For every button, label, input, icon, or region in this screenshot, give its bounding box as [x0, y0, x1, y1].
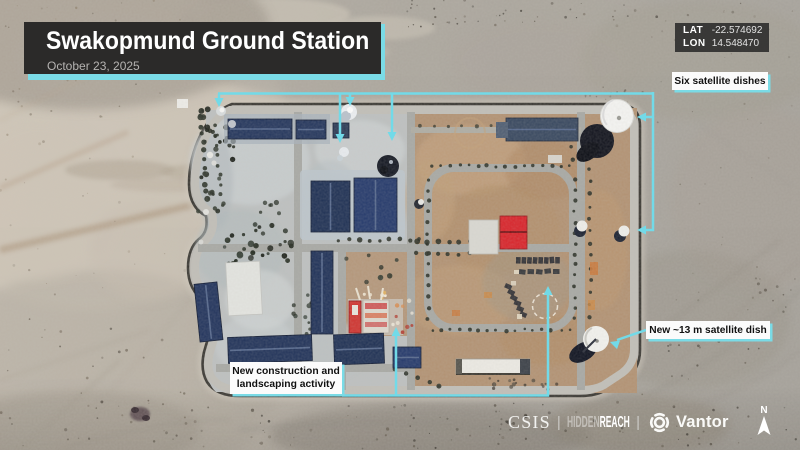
svg-text:N: N — [760, 405, 767, 416]
